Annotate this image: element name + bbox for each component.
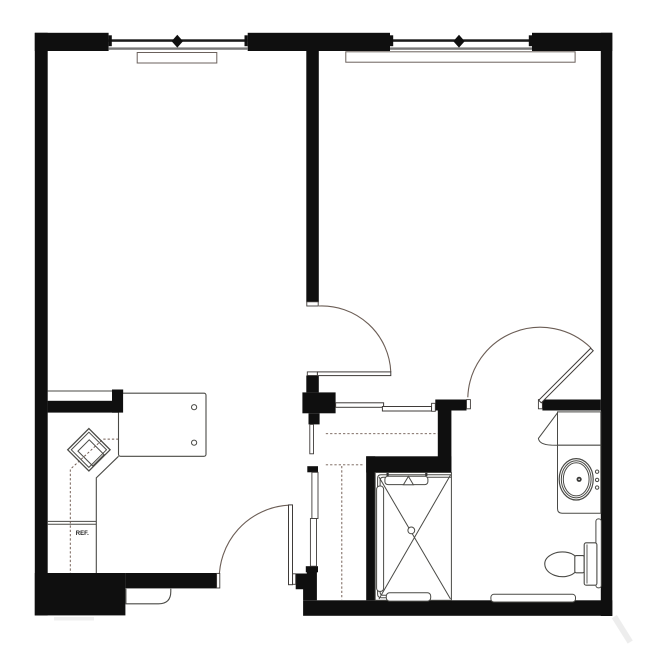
svg-text:REF.: REF.: [76, 531, 89, 537]
